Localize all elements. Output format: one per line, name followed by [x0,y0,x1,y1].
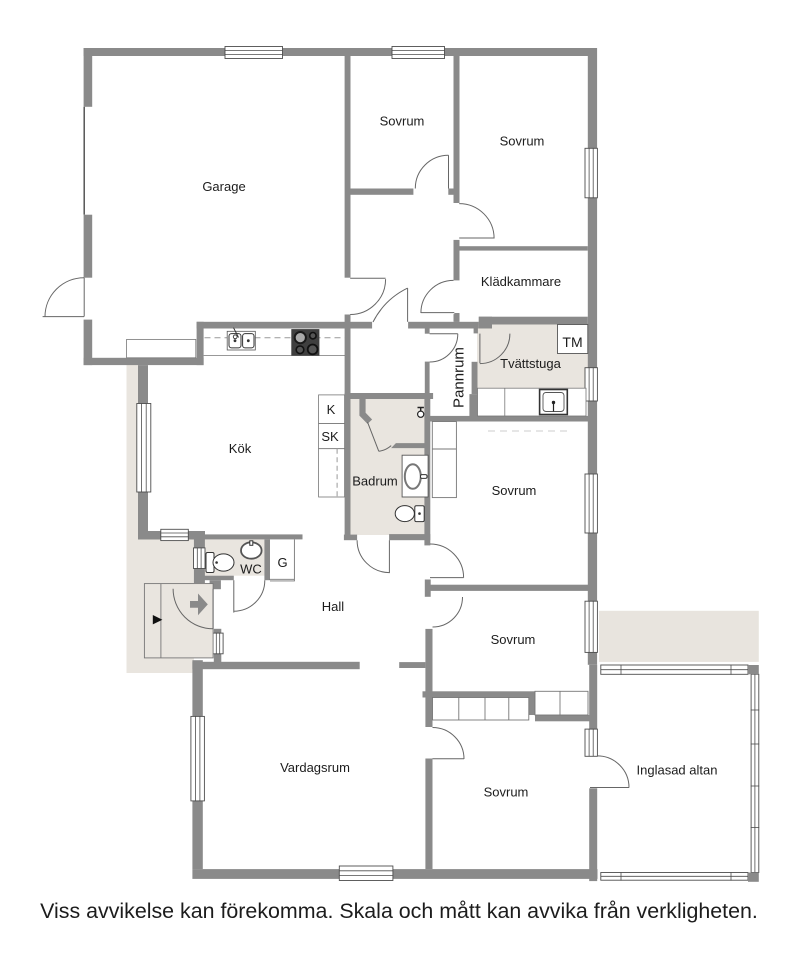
svg-text:SK: SK [321,429,339,444]
svg-text:G: G [277,555,287,570]
svg-text:Kök: Kök [229,441,252,456]
svg-text:Sovrum: Sovrum [484,785,529,800]
svg-text:Garage: Garage [202,179,245,194]
svg-text:Klädkammare: Klädkammare [481,274,561,289]
svg-text:Sovrum: Sovrum [492,483,537,498]
svg-text:Inglasad altan: Inglasad altan [637,763,718,778]
svg-text:Vardagsrum: Vardagsrum [280,760,350,775]
svg-text:WC: WC [240,562,262,577]
svg-text:TM: TM [562,334,582,350]
svg-text:Badrum: Badrum [352,474,398,489]
svg-text:Sovrum: Sovrum [491,632,536,647]
svg-text:Hall: Hall [322,599,345,614]
svg-text:Sovrum: Sovrum [380,114,425,129]
svg-text:Sovrum: Sovrum [500,134,545,149]
svg-text:Pannrum: Pannrum [451,347,468,408]
svg-text:K: K [327,402,336,417]
svg-text:Tvättstuga: Tvättstuga [500,356,561,371]
svg-text:Viss avvikelse kan förekomma.: Viss avvikelse kan förekomma. Skala och … [40,899,758,923]
